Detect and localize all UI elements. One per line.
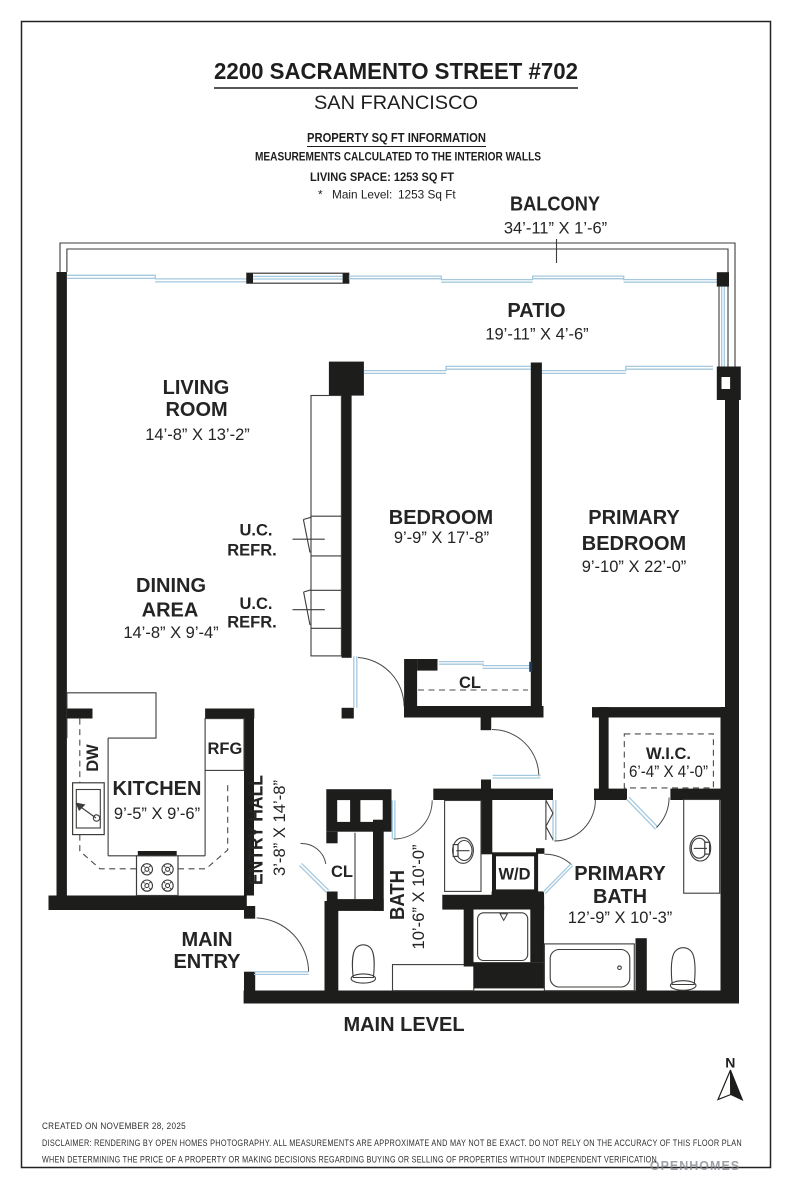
svg-text:REFR.: REFR. xyxy=(227,542,277,560)
svg-text:MAIN: MAIN xyxy=(181,929,232,951)
svg-text:BEDROOM: BEDROOM xyxy=(389,507,493,529)
svg-text:N: N xyxy=(725,1054,735,1070)
svg-text:2200 SACRAMENTO STREET #702: 2200 SACRAMENTO STREET #702 xyxy=(214,58,578,84)
svg-text:PRIMARY: PRIMARY xyxy=(588,507,680,529)
svg-text:ENTRY HALL: ENTRY HALL xyxy=(246,775,268,885)
svg-text:W.I.C.: W.I.C. xyxy=(646,745,691,763)
svg-text:9’-9” X 17’-8”: 9’-9” X 17’-8” xyxy=(394,529,489,547)
svg-text:Main Level:: Main Level: xyxy=(332,188,392,202)
svg-text:ROOM: ROOM xyxy=(165,399,227,421)
svg-text:BALCONY: BALCONY xyxy=(510,194,601,216)
svg-text:3’-8” X 14’-8”: 3’-8” X 14’-8” xyxy=(271,780,289,876)
svg-text:DW: DW xyxy=(84,744,102,772)
svg-text:12’-9” X 10’-3”: 12’-9” X 10’-3” xyxy=(568,909,673,927)
svg-text:9’-10” X 22’-0”: 9’-10” X 22’-0” xyxy=(582,558,687,576)
svg-text:*: * xyxy=(318,188,323,202)
svg-text:MEASUREMENTS CALCULATED TO THE: MEASUREMENTS CALCULATED TO THE INTERIOR … xyxy=(255,150,541,164)
svg-text:RFG: RFG xyxy=(207,740,242,758)
svg-text:LIVING SPACE: 1253 SQ FT: LIVING SPACE: 1253 SQ FT xyxy=(310,170,454,184)
svg-text:BEDROOM: BEDROOM xyxy=(582,533,686,555)
svg-text:LIVING: LIVING xyxy=(163,377,230,399)
svg-text:W/D: W/D xyxy=(498,866,530,884)
svg-text:ENTRY: ENTRY xyxy=(173,951,241,973)
svg-text:BATH: BATH xyxy=(387,870,409,920)
svg-text:WHEN DETERMINING THE PRICE OF: WHEN DETERMINING THE PRICE OF A PROPERTY… xyxy=(42,1154,657,1165)
svg-text:AREA: AREA xyxy=(142,600,199,622)
svg-text:CL: CL xyxy=(331,863,353,881)
svg-text:SAN FRANCISCO: SAN FRANCISCO xyxy=(314,92,478,114)
svg-text:DINING: DINING xyxy=(136,575,206,597)
svg-text:KITCHEN: KITCHEN xyxy=(113,778,202,800)
svg-text:U.C.: U.C. xyxy=(240,595,273,613)
svg-text:9’-5” X 9’-6”: 9’-5” X 9’-6” xyxy=(114,805,200,823)
svg-text:CL: CL xyxy=(459,674,481,692)
svg-text:14’-8” X 13’-2”: 14’-8” X 13’-2” xyxy=(145,426,250,444)
svg-text:10’-6” X 10’-0”: 10’-6” X 10’-0” xyxy=(410,845,428,950)
svg-text:DISCLAIMER: RENDERING BY OPEN: DISCLAIMER: RENDERING BY OPEN HOMES PHOT… xyxy=(42,1137,742,1148)
svg-text:PATIO: PATIO xyxy=(507,300,565,322)
svg-text:U.C.: U.C. xyxy=(240,522,273,540)
svg-text:34’-11” X 1’-6”: 34’-11” X 1’-6” xyxy=(504,220,607,238)
svg-text:6’-4” X 4’-0”: 6’-4” X 4’-0” xyxy=(629,763,708,781)
svg-text:14’-8” X 9’-4”: 14’-8” X 9’-4” xyxy=(123,624,218,642)
svg-text:1253 Sq Ft: 1253 Sq Ft xyxy=(398,188,456,202)
svg-text:CREATED ON NOVEMBER 28, 2025: CREATED ON NOVEMBER 28, 2025 xyxy=(42,1120,186,1131)
svg-text:19’-11” X 4’-6”: 19’-11” X 4’-6” xyxy=(485,326,588,344)
svg-text:PRIMARY: PRIMARY xyxy=(574,863,666,885)
svg-text:MAIN LEVEL: MAIN LEVEL xyxy=(343,1014,464,1036)
svg-text:OPENHOMES: OPENHOMES xyxy=(650,1159,740,1173)
svg-text:BATH: BATH xyxy=(593,886,647,908)
svg-text:PROPERTY SQ FT INFORMATION: PROPERTY SQ FT INFORMATION xyxy=(307,131,486,145)
svg-text:REFR.: REFR. xyxy=(227,614,277,632)
